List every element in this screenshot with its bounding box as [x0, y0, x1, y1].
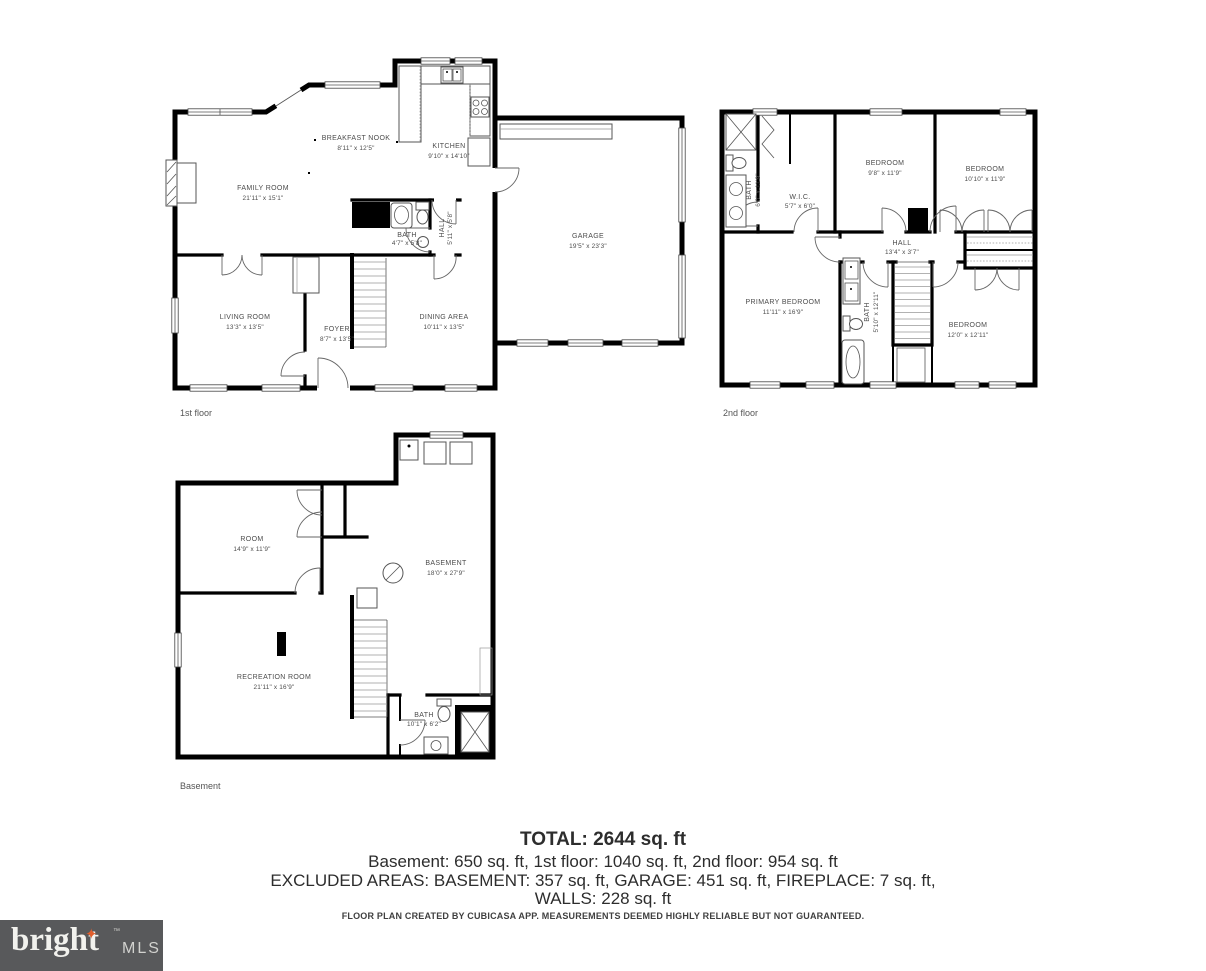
- window: [870, 109, 902, 115]
- room-label: BATH: [864, 302, 871, 322]
- room-dims: 10'11" x 13'5": [424, 324, 465, 331]
- vanity-sinks: [726, 175, 746, 227]
- chimney: [352, 202, 390, 228]
- chimney: [908, 208, 928, 232]
- support-post: [357, 588, 377, 608]
- disclaimer-text: FLOOR PLAN CREATED BY CUBICASA APP. MEAS…: [0, 911, 1206, 921]
- room-dims: 13'3" x 13'5": [226, 324, 264, 331]
- toilet-icon: [726, 155, 746, 171]
- floor-areas: Basement: 650 sq. ft, 1st floor: 1040 sq…: [0, 853, 1206, 872]
- window: [375, 385, 413, 391]
- room-closet-doors: [297, 490, 322, 537]
- window: [679, 128, 685, 222]
- area-summary: TOTAL: 2644 sq. ft Basement: 650 sq. ft,…: [0, 829, 1206, 909]
- bedroom2-wardrobe: [940, 210, 1032, 232]
- window: [190, 385, 227, 391]
- front-door: [317, 358, 350, 392]
- bedroom1-door: [882, 208, 906, 232]
- living-room-double-door: [222, 255, 262, 275]
- electrical-symbol: [383, 563, 403, 583]
- primary-door: [815, 237, 840, 262]
- room-label: BATH: [746, 180, 753, 200]
- room-label: BEDROOM: [949, 322, 988, 329]
- room-label: BEDROOM: [866, 160, 905, 167]
- room-dims: 18'0" x 27'9": [427, 570, 465, 577]
- window: [870, 382, 896, 388]
- bathtub-icon: [391, 203, 412, 228]
- window: [679, 255, 685, 338]
- room-label: LIVING ROOM: [220, 314, 271, 321]
- bath2-door: [863, 262, 888, 287]
- room-dims: 4'7" x 5'8": [392, 240, 422, 247]
- room-dims: 9'10" x 14'10": [428, 153, 469, 160]
- room-dims: 5'10" x 12'11": [873, 292, 880, 333]
- window: [517, 340, 548, 346]
- basement-windows: [175, 432, 463, 667]
- room-dims: 5'11" x 5'8": [447, 211, 454, 244]
- window: [175, 633, 181, 667]
- floor-plan-basement: ROOM 14'9" x 11'9" BASEMENT 18'0" x 27'9…: [172, 428, 502, 768]
- foyer-closet: [293, 257, 319, 293]
- room-label: BREAKFAST NOOK: [322, 135, 391, 142]
- room-label: PRIMARY BEDROOM: [745, 299, 820, 306]
- window: [445, 385, 477, 391]
- room-dims: 21'11" x 16'9": [254, 684, 295, 691]
- living-room-door: [281, 352, 305, 376]
- window: [1000, 109, 1026, 115]
- bedroom3-door: [933, 262, 958, 287]
- window: [806, 382, 834, 388]
- shower-icon: [726, 114, 756, 150]
- bedroom3-wardrobe: [975, 268, 1019, 290]
- wic-door: [794, 208, 818, 232]
- first-floor-caption: 1st floor: [180, 408, 212, 418]
- room-label: BEDROOM: [966, 166, 1005, 173]
- window: [955, 382, 979, 388]
- window: [276, 90, 301, 106]
- room-label: KITCHEN: [432, 143, 465, 150]
- builtin-shelf: [480, 648, 492, 695]
- window: [262, 385, 300, 391]
- toilet-icon: [416, 202, 429, 224]
- fireplace-icon: [166, 160, 196, 206]
- room-label: FOYER: [324, 326, 350, 333]
- window: [750, 382, 780, 388]
- room-label: BATH: [397, 232, 417, 239]
- window: [568, 340, 603, 346]
- room-dims: 10'10" x 11'9": [965, 176, 1006, 183]
- stairs-first: [354, 258, 386, 347]
- garage-door: [500, 124, 612, 139]
- trademark-symbol: ™: [113, 928, 120, 935]
- window: [455, 58, 482, 64]
- room-label: HALL: [893, 240, 912, 247]
- room-label: GARAGE: [572, 233, 604, 240]
- room-dims: 19'5" x 23'3": [569, 243, 607, 250]
- basement-caption: Basement: [180, 781, 221, 791]
- wic-hanging-rod: [762, 116, 774, 158]
- excluded-areas: EXCLUDED AREAS: BASEMENT: 357 sq. ft, GA…: [0, 872, 1206, 891]
- room-to-rec-door: [295, 568, 320, 593]
- chimney: [277, 632, 286, 656]
- room-label: RECREATION ROOM: [237, 674, 311, 681]
- window: [172, 298, 178, 333]
- room-dims: 21'11" x 15'1": [243, 195, 284, 202]
- window: [188, 109, 252, 115]
- total-area: TOTAL: 2644 sq. ft: [0, 829, 1206, 851]
- stairs-basement: [354, 620, 387, 717]
- garage-entry-door: [491, 168, 519, 192]
- walls-area: WALLS: 228 sq. ft: [0, 890, 1206, 909]
- stairs-second: [895, 267, 930, 382]
- room-label: W.I.C.: [789, 194, 810, 201]
- window: [989, 382, 1016, 388]
- window: [421, 58, 450, 64]
- window: [430, 432, 463, 438]
- room-label: HALL: [439, 219, 446, 238]
- floor-plan-second: BATH 6'0" x 11'9" W.I.C. 5'7" x 6'0" BED…: [715, 105, 1045, 395]
- room-label: BATH: [414, 712, 434, 719]
- room-label: ROOM: [240, 536, 263, 543]
- floor-plan-first: FAMILY ROOM 21'11" x 15'1" BREAKFAST NOO…: [165, 55, 710, 405]
- window: [622, 340, 658, 346]
- kitchen-counters: [399, 66, 490, 166]
- room-dims: 6'0" x 11'9": [755, 173, 762, 206]
- room-dims: 5'7" x 6'0": [785, 203, 815, 210]
- room-label: BASEMENT: [425, 560, 467, 567]
- first-floor-labels: FAMILY ROOM 21'11" x 15'1" BREAKFAST NOO…: [220, 135, 607, 343]
- room-dims: 9'8" x 11'9": [868, 170, 901, 177]
- room-label: DINING AREA: [420, 314, 469, 321]
- window: [753, 109, 777, 115]
- room-label: FAMILY ROOM: [237, 185, 289, 192]
- room-dims: 8'11" x 12'5": [337, 145, 374, 152]
- room-dims: 13'4" x 3'7": [885, 249, 919, 256]
- star-icon: ✦: [85, 925, 98, 943]
- room-dims: 14'9" x 11'9": [233, 546, 270, 553]
- room-dims: 8'7" x 13'5": [320, 336, 354, 343]
- room-dims: 11'11" x 16'9": [763, 309, 803, 316]
- mls-label: MLS: [122, 940, 161, 958]
- window: [325, 82, 380, 88]
- bath-fixtures: [424, 699, 493, 757]
- second-floor-walls: [722, 112, 1035, 385]
- hall-bottom-door: [434, 255, 456, 279]
- second-floor-caption: 2nd floor: [723, 408, 758, 418]
- laundry-fixtures: [400, 440, 472, 464]
- brightmls-logo: bright ✦ ™ MLS: [0, 920, 163, 971]
- room-dims: 12'0" x 12'11": [948, 332, 989, 339]
- bath2-fixtures: [842, 258, 864, 384]
- room-dims: 10'1" x 6'2": [407, 721, 441, 728]
